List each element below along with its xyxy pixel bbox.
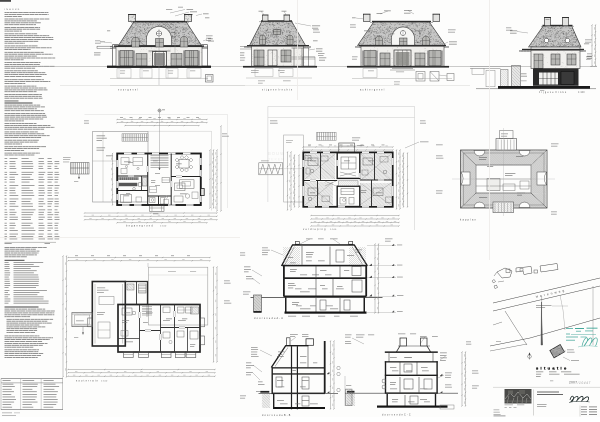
- svg-text:I N H O U D: I N H O U D: [5, 9, 20, 11]
- svg-text:1:100: 1:100: [101, 381, 108, 383]
- svg-text:d o o r s n e d e A - A: d o o r s n e d e A - A: [254, 317, 283, 320]
- svg-text:v e r d i e p i n g: v e r d i e p i n g: [303, 228, 326, 231]
- svg-text:a c h t e r g e v e l: a c h t e r g e v e l: [360, 88, 385, 91]
- svg-text:s o u t e r r a i n: s o u t e r r a i n: [76, 380, 99, 383]
- svg-text:d o o r s n e d e C - C: d o o r s n e d e C - C: [382, 414, 411, 417]
- svg-text:z i j g e v e l l i n k s: z i j g e v e l l i n k s: [539, 92, 567, 94]
- svg-text:TEKEN: TEKEN: [268, 158, 285, 162]
- svg-text:2007: 2007: [569, 381, 577, 385]
- svg-text:d o o r s n e d e B - B: d o o r s n e d e B - B: [262, 414, 291, 417]
- svg-text:b e g a n e g r o n d: b e g a n e g r o n d: [126, 225, 153, 228]
- svg-text:z i j g e v e l r e c h t s: z i j g e v e l r e c h t s: [262, 88, 293, 91]
- svg-text:1:100: 1:100: [578, 92, 585, 94]
- svg-text:1:100: 1:100: [160, 226, 167, 228]
- svg-text:BOUW: BOUW: [268, 151, 285, 156]
- svg-text:v o o r g e v e l: v o o r g e v e l: [118, 88, 138, 91]
- svg-text:/10447: /10447: [577, 381, 591, 385]
- svg-text:s i t u a t i e: s i t u a t i e: [536, 366, 567, 371]
- svg-text:1:100: 1:100: [330, 229, 337, 231]
- svg-text:k a p p l a n: k a p p l a n: [460, 219, 477, 222]
